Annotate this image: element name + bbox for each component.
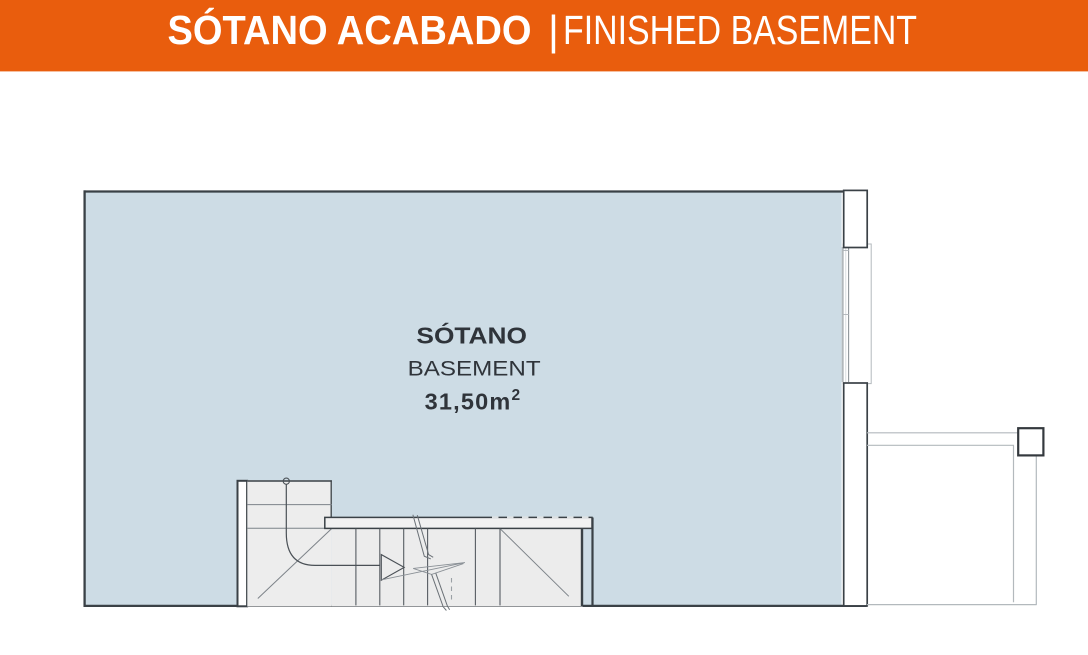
svg-text:|: | <box>548 7 559 54</box>
svg-text:SÓTANO: SÓTANO <box>416 322 527 349</box>
svg-text:FINISHED BASEMENT: FINISHED BASEMENT <box>563 7 917 53</box>
svg-text:31,50m2: 31,50m2 <box>425 387 522 415</box>
svg-text:BASEMENT: BASEMENT <box>408 358 541 381</box>
svg-text:SÓTANO ACABADO: SÓTANO ACABADO <box>168 7 532 53</box>
